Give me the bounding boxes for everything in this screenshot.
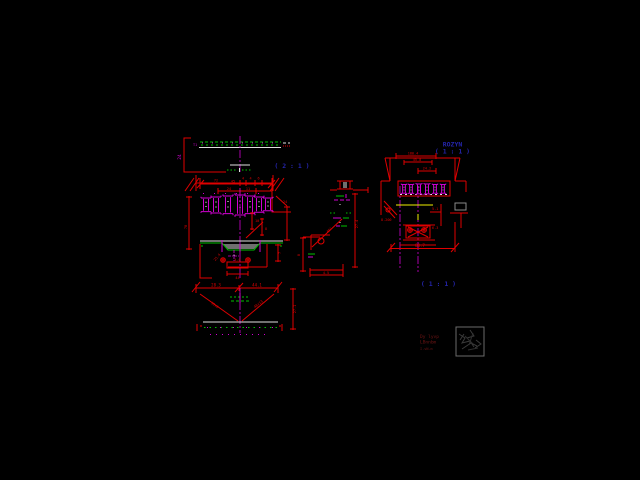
- title-block-line2: LBnnbm: [420, 340, 437, 346]
- brace-label: 30x8: [210, 301, 219, 309]
- left-gusset: [381, 192, 397, 218]
- view-scale: ( 1 : 1 ): [435, 148, 470, 156]
- right-leader: [272, 184, 291, 212]
- dim-text: 4.5: [323, 271, 329, 275]
- dim-text: 24: [283, 200, 287, 204]
- dim-text: 45.0: [413, 158, 421, 162]
- title-block-line3: I.vN.m: [420, 347, 433, 351]
- gusset-label: 8.200: [381, 218, 392, 222]
- dim-text: 25.4: [213, 253, 221, 262]
- title-block-line1: Dy lyvp: [420, 334, 439, 340]
- stiffener-ibeam: [201, 197, 211, 213]
- weld-text: 6.3: [432, 226, 438, 230]
- dim-text: 27.1: [293, 305, 297, 313]
- seg-dim: 4: [242, 177, 244, 181]
- dim-text: 8: [265, 227, 267, 231]
- left-height-dim: [186, 196, 192, 250]
- seg-dim: 6: [257, 177, 259, 181]
- height-dim: [352, 193, 358, 268]
- cross-section-view: 45 24 11 24 78 10 8: [184, 178, 291, 280]
- beam-end-symbol: [337, 181, 353, 189]
- height-dim-text: 24: [177, 154, 183, 160]
- scale-annotation-2: ( 1 : 1 ): [421, 280, 456, 288]
- title-block: Dy lyvp LBnnbm I.vN.m: [420, 327, 484, 356]
- dim-text: 24.2: [423, 167, 431, 171]
- structure-outline: [381, 158, 466, 192]
- dim-text: 8: [297, 254, 301, 256]
- plate-fill: [337, 210, 345, 215]
- cad-viewport: 24 T1 72 4 4 6 ( 2 : 1 ) 45 24 11 24: [0, 0, 640, 480]
- diagonal-brace: [242, 294, 274, 321]
- dim-text: 7: [278, 252, 282, 254]
- end-plate: [455, 203, 466, 210]
- edge-label-text: T1: [193, 143, 197, 147]
- dim-text: 11: [246, 187, 250, 191]
- dim-text: 180.4: [408, 152, 419, 156]
- side-detail-view: 27.4 45° 8 4.5: [297, 181, 368, 277]
- stiffener-ibeam: [223, 194, 233, 215]
- leader-line: [246, 222, 263, 238]
- node-view: ROZYN ( 1 : 1 ) 180.4 45.0 24.2 8.200 5.…: [381, 141, 470, 289]
- dim-arrows: [192, 282, 282, 292]
- dim-text: 4.0: [234, 258, 240, 262]
- dim-text: 44: [235, 276, 239, 280]
- seg-dim: 4: [249, 177, 251, 181]
- seg-dim: 72: [214, 179, 218, 183]
- height-dim-bracket: [184, 138, 226, 172]
- stiffener-ibeam: [401, 184, 407, 194]
- dim-text: 27.4: [355, 220, 359, 228]
- scale-annotation: ( 2 : 1 ): [274, 162, 309, 170]
- dim-text: 10: [255, 219, 259, 223]
- diagonal-brace: [200, 294, 238, 321]
- dim-string: [196, 284, 278, 293]
- drawing-canvas: 24 T1 72 4 4 6 ( 2 : 1 ) 45 24 11 24: [0, 0, 640, 480]
- dim-text: 78: [184, 225, 188, 229]
- dim-text: 44.1: [252, 283, 262, 288]
- dim-text: 24: [227, 187, 231, 191]
- stamp-emblem: [459, 330, 481, 349]
- stiffener-ibeam: [245, 194, 255, 215]
- haunch-fill: [222, 244, 260, 249]
- company-stamp: [456, 327, 484, 356]
- dim-text: 45: [231, 180, 235, 184]
- dim-top: [200, 178, 272, 189]
- dim-text: 5.1: [432, 207, 438, 211]
- bottom-flange-view: 28.3 44.1 30x8 48x13 27.1: [192, 282, 297, 335]
- dim-text: 80.7: [415, 243, 425, 248]
- dim-text: 28.3: [211, 283, 221, 288]
- stiffener-ibeam: [211, 196, 221, 215]
